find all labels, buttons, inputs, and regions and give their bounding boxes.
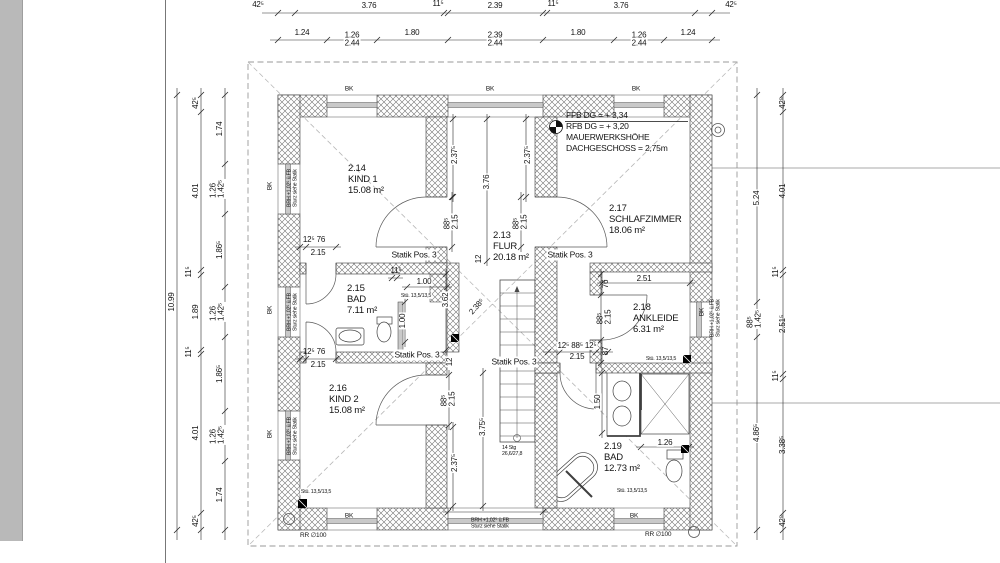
dim-label: 12⁵ 88⁵ 12⁵ (557, 342, 598, 350)
lintel-note: BRH +1,02⁵ ü.FB Sturz siehe Statik (287, 169, 300, 207)
dim-label: 2.38⁵ (468, 298, 486, 317)
dim-label: 5.24 (753, 190, 761, 207)
window-mark: BK (345, 87, 353, 94)
dim-label: 87 (602, 347, 610, 356)
dim-label: 3.38⁵ (779, 436, 787, 454)
dim-label: 2.51 (637, 275, 652, 283)
dim-label: 1.00 (416, 278, 433, 286)
lintel-note: BRH +1,02⁵ ü.FB Sturz siehe Statik (471, 518, 509, 531)
dim-label: 42⁵ (192, 97, 200, 109)
dim-label: 2.37⁵ (451, 145, 459, 165)
statik-label: Statik Pos. 3 (490, 356, 537, 367)
dim-label: 2.37⁵ (524, 145, 532, 165)
dim-label: 4.01 (192, 184, 200, 199)
dim-label: 88⁵ 2.15 (597, 310, 614, 325)
dim-label: 1.26 (657, 439, 674, 447)
dim-label: 1.26 1.42⁵ (210, 179, 227, 199)
window-mark: BK (630, 514, 638, 521)
pipe-label: RR ∅100 (645, 532, 671, 539)
dim-label: 1.26 1.42⁵ (210, 425, 227, 445)
column-note: Stü. 13,5/13,5 (300, 489, 332, 495)
dim-label: 11⁵ (185, 346, 193, 357)
dim-label: 11⁵ (547, 0, 558, 8)
dim-label: 1.24 (295, 29, 310, 37)
dim-label: 2.15 (569, 353, 586, 361)
dim-label: 11⁵ (390, 267, 401, 275)
dim-label: 1.26 1.42⁵ (210, 302, 227, 322)
dim-label: 2.15 (311, 249, 326, 257)
dim-label: 1.26 2.44 (344, 32, 361, 49)
column-note: Stü. 13,5/13,5 (400, 293, 432, 299)
dim-label: 11⁵ (185, 266, 193, 277)
window-mark: BK (268, 182, 275, 190)
room-label: 2.18 ANKLEIDE 6.31 m² (633, 302, 678, 336)
window-mark: BK (486, 87, 494, 94)
dim-label: 12⁵ 76 (303, 236, 325, 244)
dim-label: 76 (602, 280, 610, 289)
dim-label: 1.26 2.44 (631, 32, 648, 49)
dim-label: 1.86⁵ (216, 365, 224, 383)
statik-label: Statik Pos. 3 (390, 249, 437, 260)
dim-label: 2.37⁵ (451, 453, 459, 473)
dim-label: 88⁵ 2.15 (444, 214, 461, 231)
dim-label: 11⁵ (772, 370, 780, 381)
dim-label: 1.74 (216, 488, 224, 503)
dim-label: 3.62 (442, 292, 450, 309)
statik-label: Statik Pos. 3 (393, 349, 440, 360)
dim-label: 12 (446, 357, 454, 368)
dim-label: 1.00 (399, 313, 407, 330)
dim-label: 4.01 (779, 184, 787, 199)
dim-label: 42⁵ (252, 1, 264, 9)
level-text: FFB DG = + 3,34 RFB DG = + 3,20 MAUERWER… (566, 110, 668, 154)
dim-label: 12⁵ 76 (303, 348, 325, 356)
dim-label: 11⁵ (772, 266, 780, 277)
room-label: 2.16 KIND 2 15.08 m² (329, 383, 365, 417)
window-mark: BK (700, 308, 707, 316)
window-mark: BK (345, 514, 353, 521)
dim-label: 2.39 (488, 2, 503, 10)
stair-note: 14 Stg 26,6/27,8 (502, 445, 522, 458)
dim-label: 2.39 2.44 (487, 32, 504, 49)
annotation-layer: 2.14 KIND 1 15.08 m²2.13 FLUR 20.18 m²2.… (0, 0, 1000, 563)
dim-label: 1.86⁵ (216, 241, 224, 259)
column-note: Stü. 13,5/13,5 (645, 356, 677, 362)
dim-label: 3.76 (614, 2, 629, 10)
dim-label: 42⁵ (779, 515, 787, 527)
lintel-note: BRH +1,02⁵ ü.FB Sturz siehe Statik (287, 417, 300, 455)
pipe-label: RR ∅100 (300, 533, 326, 540)
dim-label: 3.76 (362, 2, 377, 10)
dim-label: 88⁵ 1.42⁵ (747, 309, 764, 329)
lintel-note: BRH +1,02⁵ ü.FB Sturz siehe Statik (287, 293, 300, 331)
room-label: 2.19 BAD 12.73 m² (604, 441, 640, 475)
dim-label: 10.99 (168, 292, 176, 311)
dim-label: 12 (475, 255, 483, 264)
window-mark: BK (268, 306, 275, 314)
dim-label: 3.76 (483, 174, 491, 191)
column-note: Stü. 13,5/13,5 (616, 488, 648, 494)
dim-label: 88⁵ 2.15 (441, 391, 458, 408)
dim-label: 1.89 (192, 305, 200, 320)
statik-label: Statik Pos. 3 (546, 249, 593, 260)
lintel-note: BRH +1,02⁵ ü.FB Sturz siehe Statik (710, 299, 723, 337)
dim-label: 1.24 (681, 29, 696, 37)
dim-label: 2.15 (311, 361, 326, 369)
dim-label: 4.01 (192, 426, 200, 441)
dim-label: 42⁵ (192, 515, 200, 527)
dim-label: 1.50 (594, 394, 602, 411)
dim-label: 1.80 (571, 29, 586, 37)
dim-label: 42⁵ (725, 1, 737, 9)
dim-label: 2.51⁵ (779, 315, 787, 333)
dim-label: 11⁵ (432, 0, 443, 8)
window-mark: BK (268, 430, 275, 438)
room-label: 2.15 BAD 7.11 m² (347, 283, 377, 317)
dim-label: 4.86⁵ (753, 423, 761, 443)
window-mark: BK (632, 87, 640, 94)
room-label: 2.13 FLUR 20.18 m² (493, 230, 529, 264)
dim-label: 1.80 (405, 29, 420, 37)
dim-label: 42⁵ (779, 97, 787, 109)
dim-label: 88⁵ 2.15 (513, 214, 530, 231)
room-label: 2.17 SCHLAFZIMMER 18.06 m² (609, 203, 682, 237)
room-label: 2.14 KIND 1 15.08 m² (348, 163, 384, 197)
dim-label: 1.74 (216, 122, 224, 137)
floor-plan-sheet: 2.14 KIND 1 15.08 m²2.13 FLUR 20.18 m²2.… (0, 0, 1000, 563)
dim-label: 3.75⁵ (479, 417, 487, 437)
